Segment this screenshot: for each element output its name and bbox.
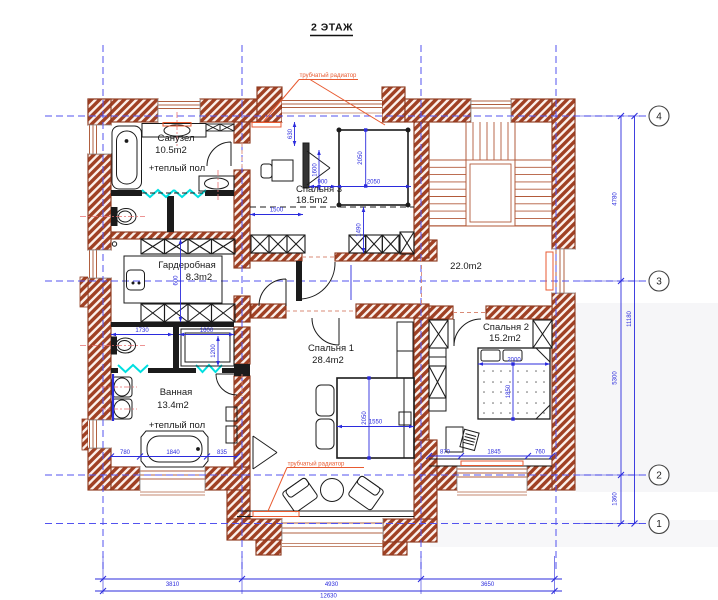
svg-text:Спальня 2: Спальня 2 bbox=[483, 322, 529, 333]
svg-text:2 ЭТАЖ: 2 ЭТАЖ bbox=[311, 22, 353, 34]
svg-text:28.4m2: 28.4m2 bbox=[312, 355, 344, 366]
svg-text:780: 780 bbox=[120, 450, 131, 456]
svg-text:12630: 12630 bbox=[320, 594, 337, 600]
svg-text:2050: 2050 bbox=[362, 411, 368, 425]
svg-text:+теплый пол: +теплый пол bbox=[149, 163, 205, 174]
svg-text:1850: 1850 bbox=[506, 384, 512, 398]
svg-text:Ванная: Ванная bbox=[160, 387, 193, 398]
svg-text:3650: 3650 bbox=[481, 582, 495, 588]
svg-text:22.0m2: 22.0m2 bbox=[450, 261, 482, 272]
svg-text:10.5m2: 10.5m2 bbox=[155, 145, 187, 156]
svg-text:1550: 1550 bbox=[369, 420, 383, 426]
svg-text:1: 1 bbox=[656, 519, 662, 530]
svg-text:5300: 5300 bbox=[613, 371, 619, 385]
svg-text:18.5m2: 18.5m2 bbox=[296, 195, 328, 206]
svg-text:3810: 3810 bbox=[166, 582, 180, 588]
svg-text:1490: 1490 bbox=[357, 223, 363, 237]
svg-text:Санузел: Санузел bbox=[157, 133, 194, 144]
svg-text:870: 870 bbox=[440, 450, 451, 456]
svg-text:1730: 1730 bbox=[135, 328, 149, 334]
svg-text:760: 760 bbox=[535, 450, 546, 456]
svg-text:1500: 1500 bbox=[270, 208, 284, 214]
svg-text:трубчатый радиатор: трубчатый радиатор bbox=[300, 72, 357, 79]
svg-text:3: 3 bbox=[656, 277, 662, 288]
svg-text:1600: 1600 bbox=[200, 328, 214, 334]
svg-text:2050: 2050 bbox=[358, 151, 364, 165]
svg-text:630: 630 bbox=[288, 128, 294, 139]
svg-text:Гардеробная: Гардеробная bbox=[158, 260, 215, 271]
svg-text:600: 600 bbox=[174, 275, 180, 286]
svg-text:+теплый пол: +теплый пол bbox=[149, 420, 205, 431]
svg-text:1200: 1200 bbox=[211, 344, 217, 358]
svg-text:11180: 11180 bbox=[627, 310, 633, 326]
svg-text:900: 900 bbox=[317, 180, 328, 186]
svg-text:835: 835 bbox=[217, 450, 228, 456]
svg-text:2: 2 bbox=[656, 471, 662, 482]
svg-text:4: 4 bbox=[656, 112, 662, 123]
svg-text:4930: 4930 bbox=[325, 582, 339, 588]
svg-text:13.4m2: 13.4m2 bbox=[157, 400, 189, 411]
svg-text:8.3m2: 8.3m2 bbox=[186, 272, 212, 283]
svg-text:1600: 1600 bbox=[313, 163, 319, 177]
svg-text:4780: 4780 bbox=[613, 192, 619, 206]
svg-text:Спальня 1: Спальня 1 bbox=[308, 343, 354, 354]
svg-text:2050: 2050 bbox=[367, 180, 381, 186]
svg-text:1840: 1840 bbox=[166, 450, 180, 456]
svg-text:1845: 1845 bbox=[487, 450, 501, 456]
svg-text:1360: 1360 bbox=[613, 492, 619, 506]
svg-text:трубчатый радиатор: трубчатый радиатор bbox=[288, 461, 345, 468]
svg-text:15.2m2: 15.2m2 bbox=[489, 333, 521, 344]
